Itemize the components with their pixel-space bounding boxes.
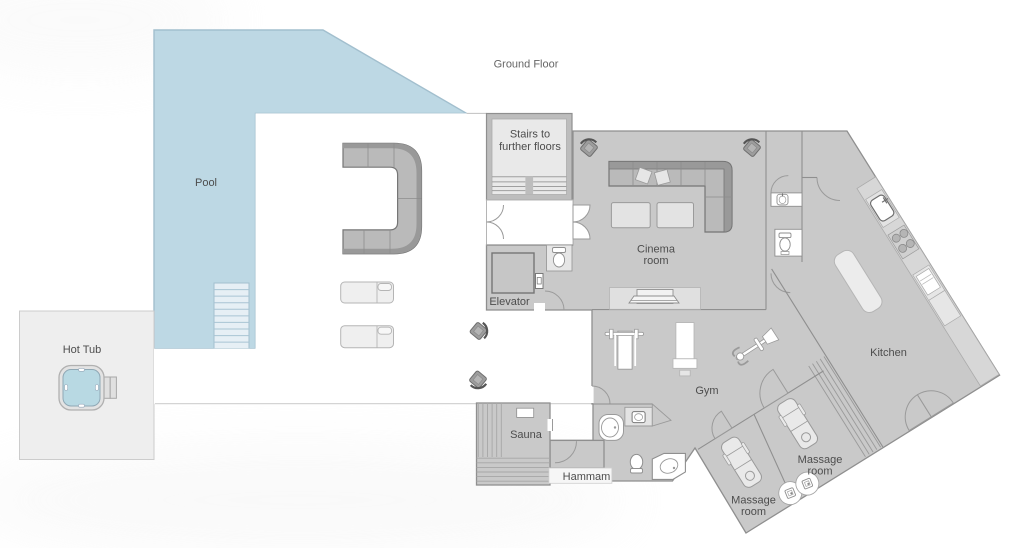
svg-text:Massage: Massage bbox=[798, 454, 843, 466]
svg-text:Massage: Massage bbox=[731, 495, 776, 507]
svg-text:Elevator: Elevator bbox=[489, 296, 530, 308]
svg-text:room: room bbox=[807, 466, 832, 478]
svg-text:further floors: further floors bbox=[499, 141, 561, 153]
svg-text:Cinema: Cinema bbox=[637, 244, 676, 256]
svg-text:Kitchen: Kitchen bbox=[870, 347, 907, 359]
svg-text:Pool: Pool bbox=[195, 177, 217, 189]
svg-text:Ground Floor: Ground Floor bbox=[494, 59, 559, 71]
svg-text:Gym: Gym bbox=[695, 385, 718, 397]
svg-text:room: room bbox=[643, 255, 668, 267]
svg-text:Hammam: Hammam bbox=[563, 471, 611, 483]
svg-text:Hot Tub: Hot Tub bbox=[63, 344, 102, 356]
svg-text:room: room bbox=[741, 506, 766, 518]
svg-text:Sauna: Sauna bbox=[510, 429, 543, 441]
svg-text:Stairs to: Stairs to bbox=[510, 129, 550, 141]
